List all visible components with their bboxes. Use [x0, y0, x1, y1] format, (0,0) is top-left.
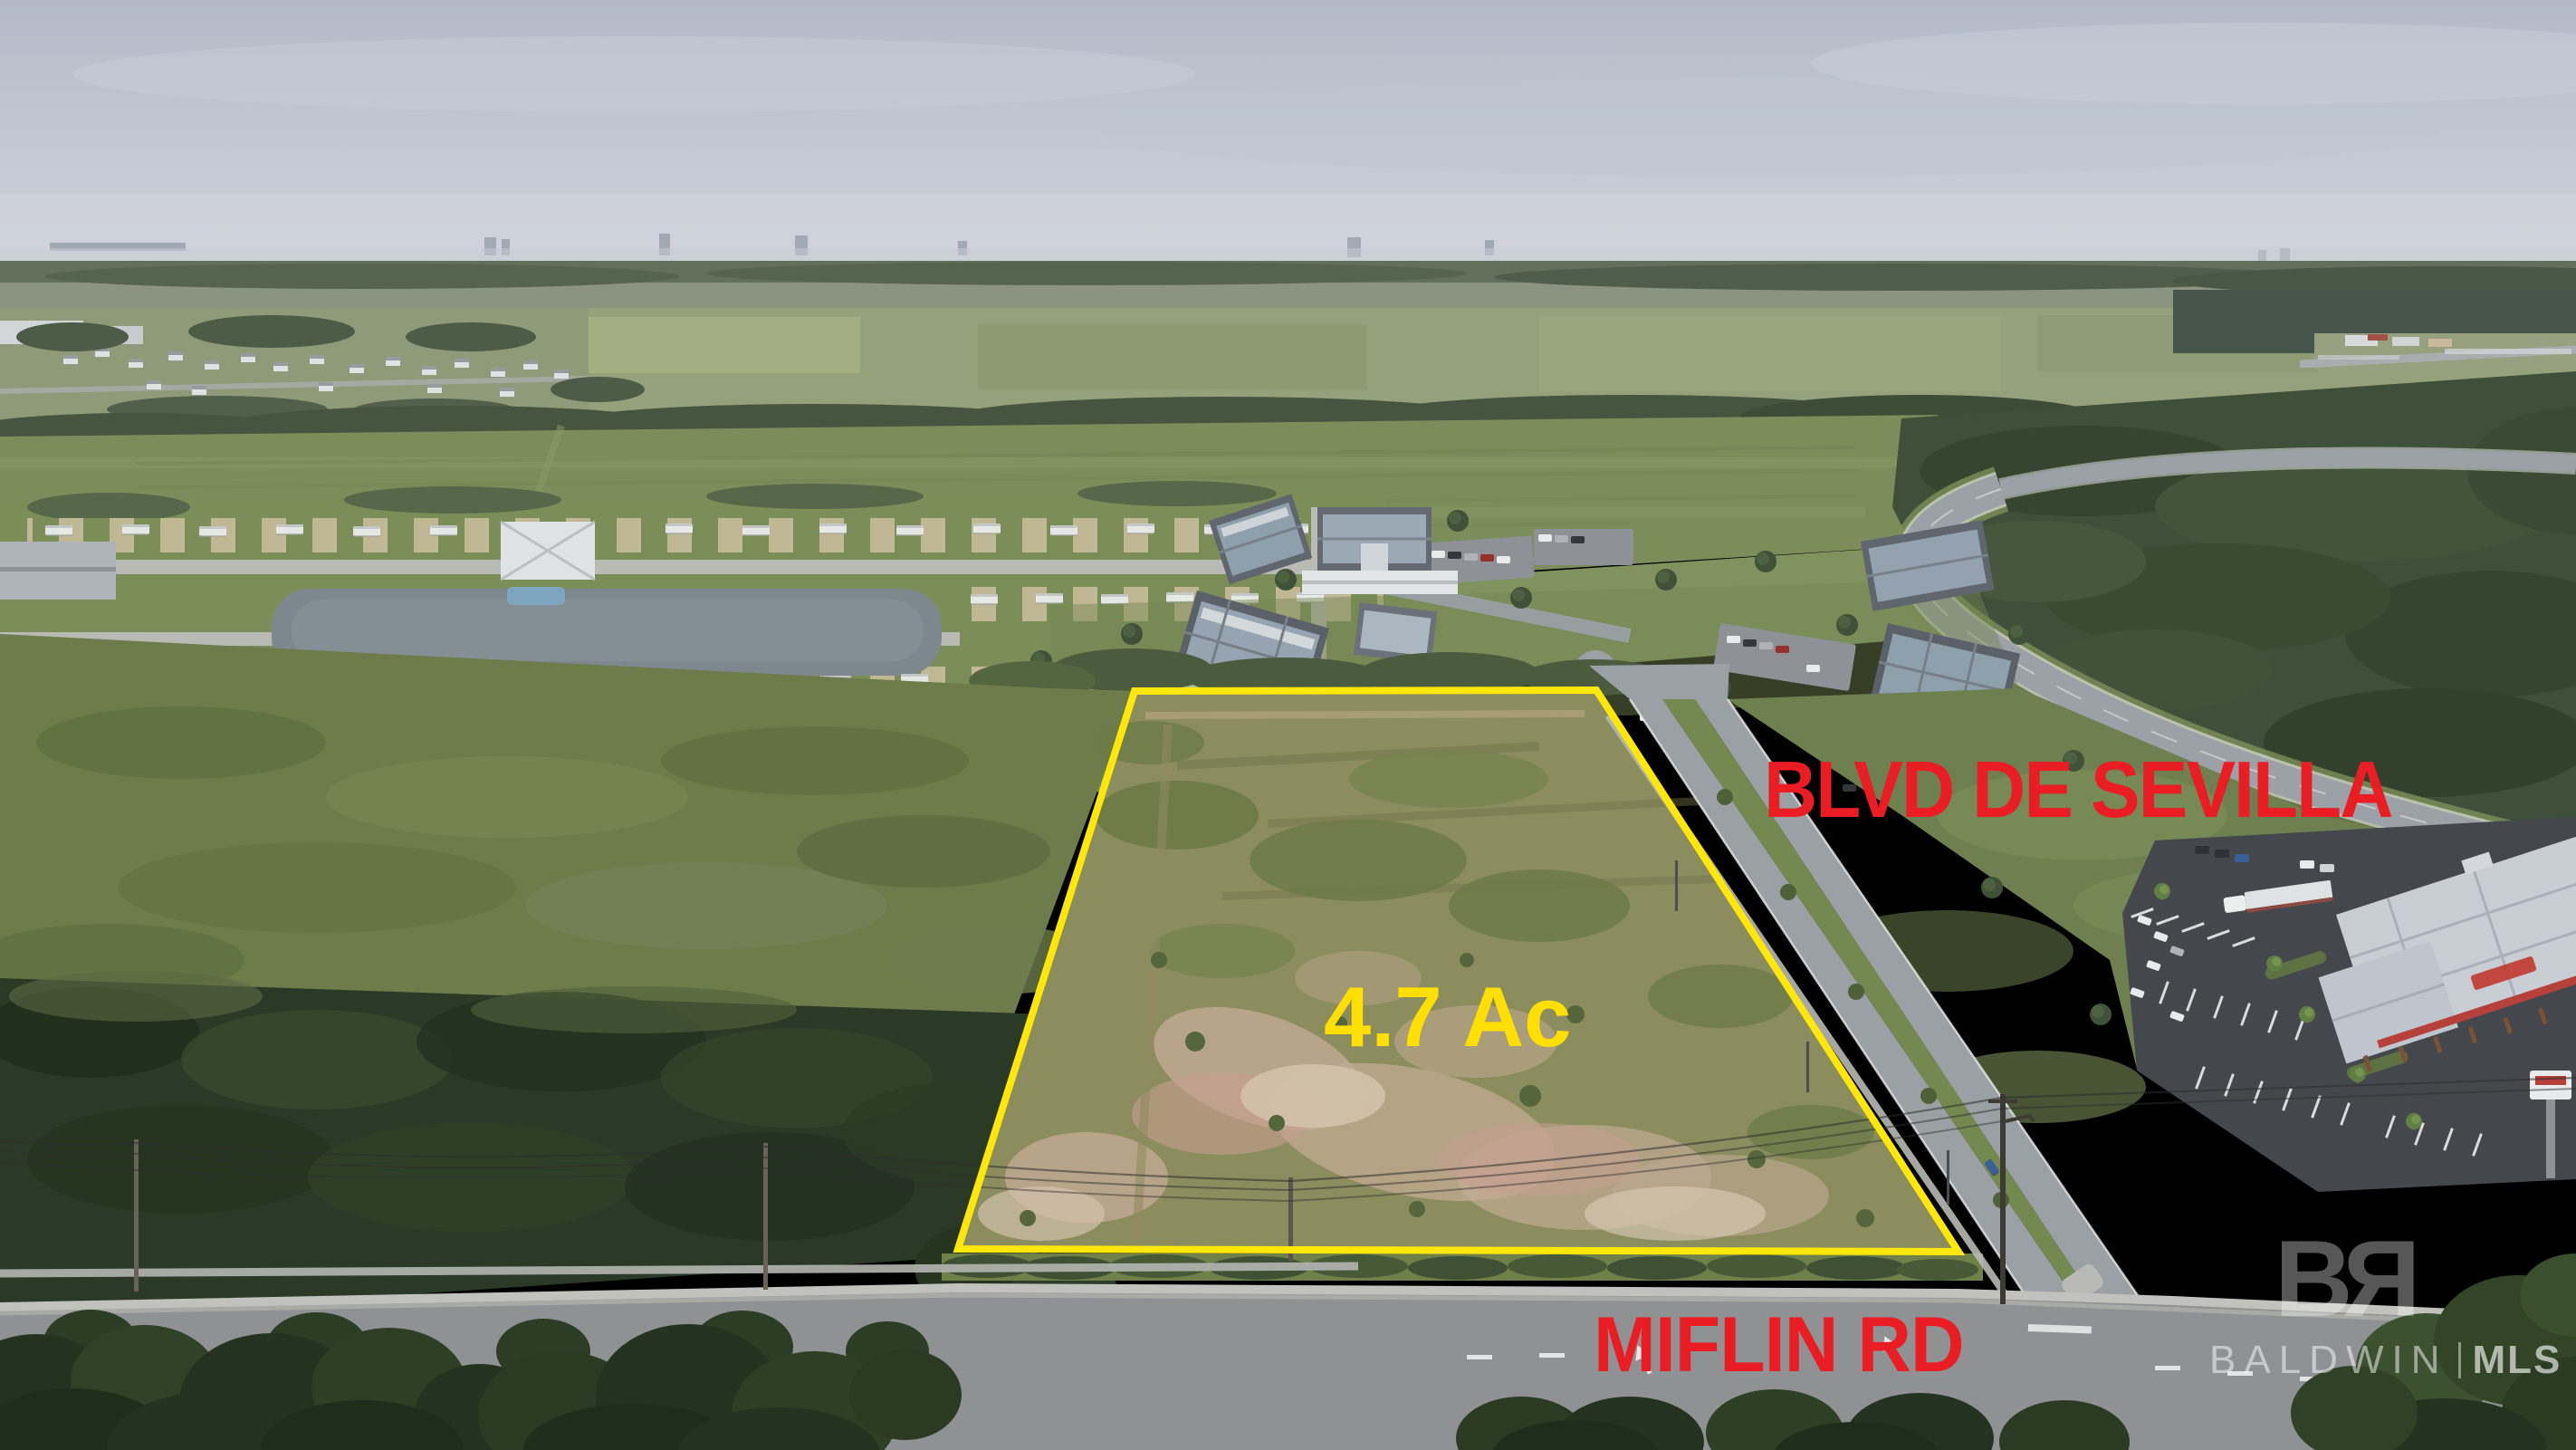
watermark-logo: B R [2274, 1224, 2420, 1333]
watermark-brand-suffix: MLS [2472, 1340, 2562, 1380]
watermark-brand: BALDWIN MLS [2209, 1340, 2562, 1380]
road-label-miflin-rd: MIFLIN RD [1594, 1306, 1964, 1384]
watermark-separator [2458, 1342, 2461, 1378]
watermark-logo-b: B [2274, 1224, 2353, 1333]
distant-commercial-strip [2300, 333, 2576, 370]
aerial-listing-photo: BLVD DE SEVILLA 4.7 Ac MIFLIN RD B R BAL… [0, 0, 2576, 1450]
road-label-blvd-de-sevilla: BLVD DE SEVILLA [1764, 750, 2392, 830]
parcel-area-label: 4.7 Ac [1324, 975, 1571, 1060]
watermark-brand-name: BALDWIN [2209, 1340, 2447, 1380]
scene [0, 0, 2576, 1450]
watermark-logo-r-mirrored: R [2342, 1224, 2421, 1333]
scrub-field [0, 634, 1135, 1014]
apartment-building [1317, 507, 1432, 571]
restaurant-parking [2122, 817, 2576, 1192]
sky [0, 0, 2576, 272]
